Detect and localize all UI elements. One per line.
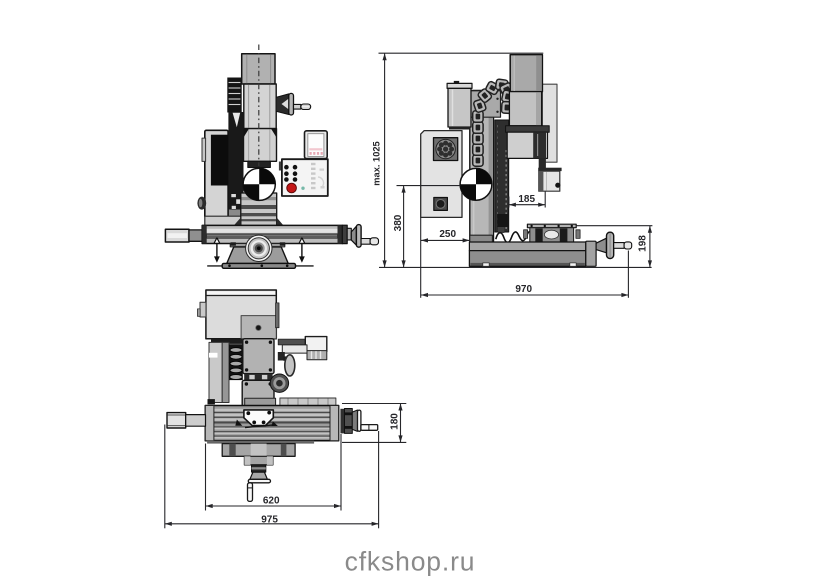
- svg-text:975: 975: [261, 515, 278, 526]
- svg-text:180: 180: [390, 413, 401, 430]
- svg-text:198: 198: [638, 235, 649, 252]
- svg-text:cfkshop.ru: cfkshop.ru: [345, 547, 476, 577]
- svg-text:620: 620: [263, 496, 280, 507]
- svg-text:380: 380: [393, 214, 404, 231]
- svg-text:250: 250: [439, 229, 456, 240]
- svg-text:max. 1025: max. 1025: [371, 141, 381, 185]
- svg-text:970: 970: [515, 284, 532, 295]
- svg-text:185: 185: [518, 194, 535, 205]
